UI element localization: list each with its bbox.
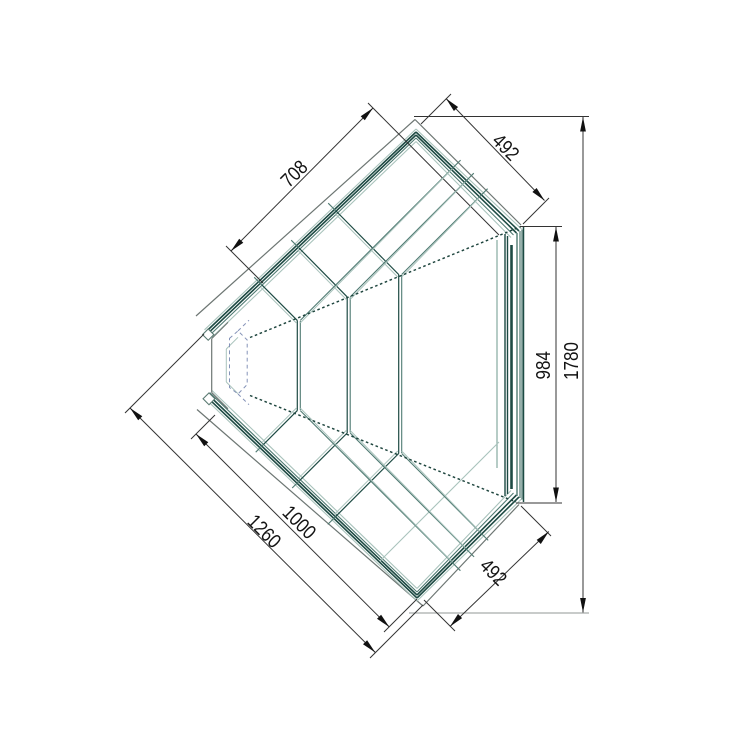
svg-text:492: 492 <box>476 554 512 590</box>
svg-text:708: 708 <box>276 155 312 191</box>
svg-text:492: 492 <box>488 129 524 165</box>
svg-text:1780: 1780 <box>559 342 582 380</box>
svg-text:984: 984 <box>532 351 555 379</box>
